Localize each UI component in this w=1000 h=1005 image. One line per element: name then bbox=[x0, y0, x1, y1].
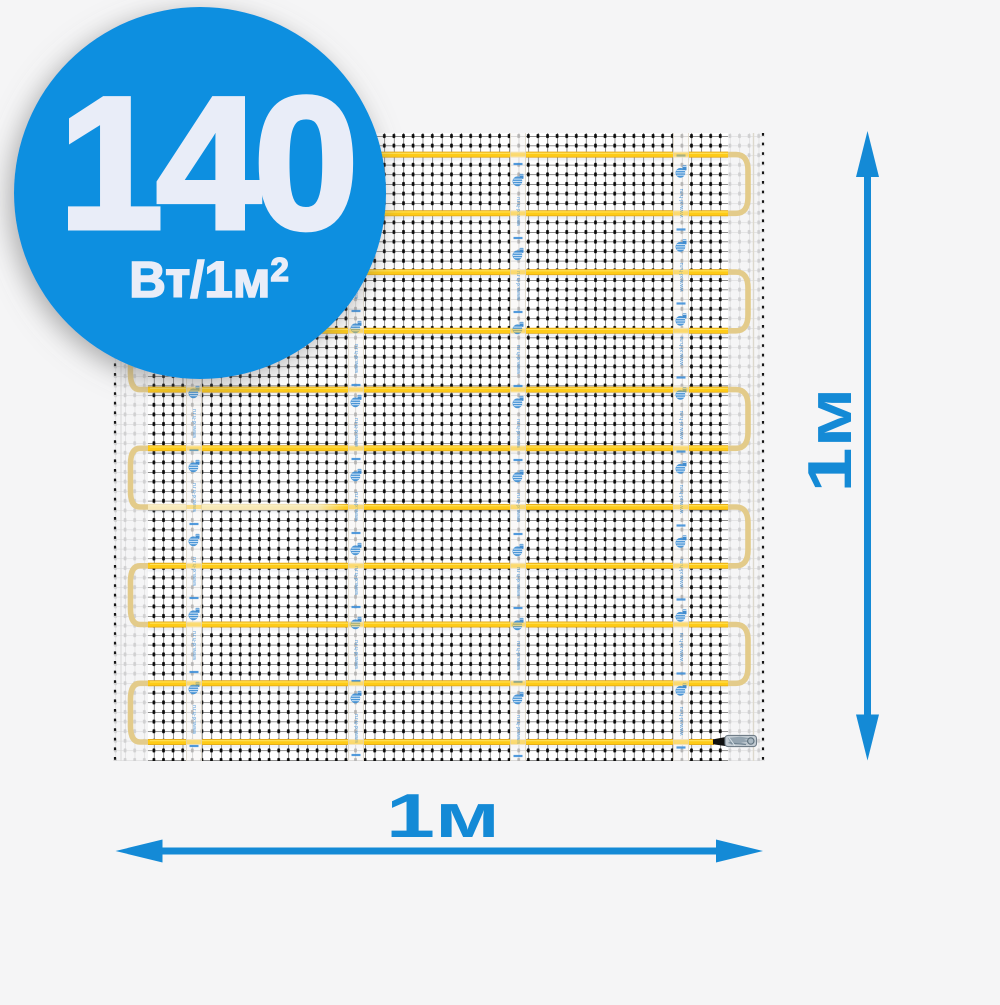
svg-text:1м: 1м bbox=[386, 782, 500, 851]
svg-text:www.xl-h.ru: www.xl-h.ru bbox=[516, 567, 522, 597]
svg-text:www.xl-h.ru: www.xl-h.ru bbox=[192, 557, 198, 587]
svg-text:www.xl-h.ru: www.xl-h.ru bbox=[679, 411, 685, 441]
svg-text:www.xl-h.ru: www.xl-h.ru bbox=[354, 566, 360, 596]
svg-text:www.xl-h.ru: www.xl-h.ru bbox=[679, 633, 685, 663]
svg-text:www.xl-h.ru: www.xl-h.ru bbox=[192, 705, 198, 735]
svg-text:www.xl-h.ru: www.xl-h.ru bbox=[679, 559, 685, 589]
svg-text:www.xl-h.ru: www.xl-h.ru bbox=[354, 418, 360, 448]
svg-text:www.xl-h.ru: www.xl-h.ru bbox=[679, 337, 685, 367]
svg-text:Вт/1м2: Вт/1м2 bbox=[129, 251, 289, 308]
svg-text:www.xl-h.ru: www.xl-h.ru bbox=[354, 344, 360, 374]
svg-text:www.xl-h.ru: www.xl-h.ru bbox=[192, 631, 198, 661]
svg-text:www.xl-h.ru: www.xl-h.ru bbox=[192, 409, 198, 439]
svg-text:www.xl-h.ru: www.xl-h.ru bbox=[516, 345, 522, 375]
svg-text:www.xl-h.ru: www.xl-h.ru bbox=[354, 714, 360, 744]
svg-text:www.xl-h.ru: www.xl-h.ru bbox=[516, 271, 522, 301]
svg-text:140: 140 bbox=[59, 58, 352, 268]
svg-text:1м: 1м bbox=[796, 387, 865, 492]
svg-text:www.xl-h.ru: www.xl-h.ru bbox=[679, 707, 685, 737]
svg-text:www.xl-h.ru: www.xl-h.ru bbox=[679, 485, 685, 515]
svg-text:www.xl-h.ru: www.xl-h.ru bbox=[516, 419, 522, 449]
svg-text:www.xl-h.ru: www.xl-h.ru bbox=[516, 641, 522, 671]
svg-text:www.xl-h.ru: www.xl-h.ru bbox=[354, 640, 360, 670]
svg-text:www.xl-h.ru: www.xl-h.ru bbox=[679, 263, 685, 293]
